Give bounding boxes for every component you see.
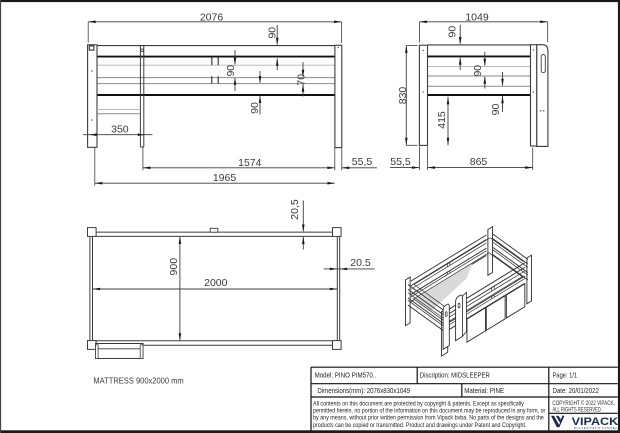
- svg-text:350: 350: [111, 124, 129, 136]
- svg-text:Discription: MIDSLEEPER: Discription: MIDSLEEPER: [420, 371, 490, 380]
- svg-text:1574: 1574: [238, 157, 262, 169]
- svg-text:permitted herein, no portion o: permitted herein, no portion of the info…: [313, 408, 546, 415]
- svg-text:1965: 1965: [213, 172, 237, 184]
- svg-text:90: 90: [225, 65, 237, 77]
- svg-text:55,5: 55,5: [390, 156, 411, 168]
- svg-text:Date: 20/01/2022: Date: 20/01/2022: [553, 386, 599, 395]
- svg-text:Material: PINE: Material: PINE: [464, 386, 504, 395]
- svg-text:2000: 2000: [204, 277, 228, 289]
- svg-text:830: 830: [397, 87, 409, 105]
- svg-text:MATTRESS 900x2000 mm: MATTRESS 900x2000 mm: [93, 376, 183, 386]
- svg-text:90: 90: [446, 26, 458, 38]
- svg-text:by any means, without prior wr: by any means, without prior written perm…: [313, 415, 544, 422]
- svg-text:All contents on this document: All contents on this document are protec…: [313, 400, 524, 407]
- svg-text:415: 415: [436, 111, 448, 129]
- svg-text:Page: 1/1: Page: 1/1: [553, 371, 578, 380]
- svg-text:2076: 2076: [200, 11, 224, 23]
- svg-text:Dimensions(mm): 2076x830x1049: Dimensions(mm): 2076x830x1049: [317, 386, 410, 395]
- svg-text:90: 90: [266, 27, 278, 39]
- svg-text:900: 900: [168, 258, 180, 276]
- svg-text:1049: 1049: [465, 11, 489, 23]
- svg-text:20,5: 20,5: [289, 199, 301, 220]
- svg-text:55,5: 55,5: [352, 156, 373, 168]
- svg-text:90: 90: [490, 104, 502, 116]
- svg-text:VIPACK: VIPACK: [572, 416, 619, 428]
- svg-text:90: 90: [249, 102, 261, 114]
- svg-text:20.5: 20.5: [350, 257, 371, 269]
- svg-text:products can be copied or tran: products can be copied or transmitted. P…: [313, 422, 527, 429]
- svg-text:865: 865: [470, 156, 488, 168]
- svg-text:FURNITURE: FURNITURE: [574, 428, 620, 430]
- svg-text:ALL RIGHTS RESERVED: ALL RIGHTS RESERVED: [552, 407, 601, 414]
- svg-text:90: 90: [472, 65, 484, 77]
- svg-text:70: 70: [295, 74, 307, 86]
- svg-text:Model: PINO PIM570..: Model: PINO PIM570..: [315, 371, 377, 380]
